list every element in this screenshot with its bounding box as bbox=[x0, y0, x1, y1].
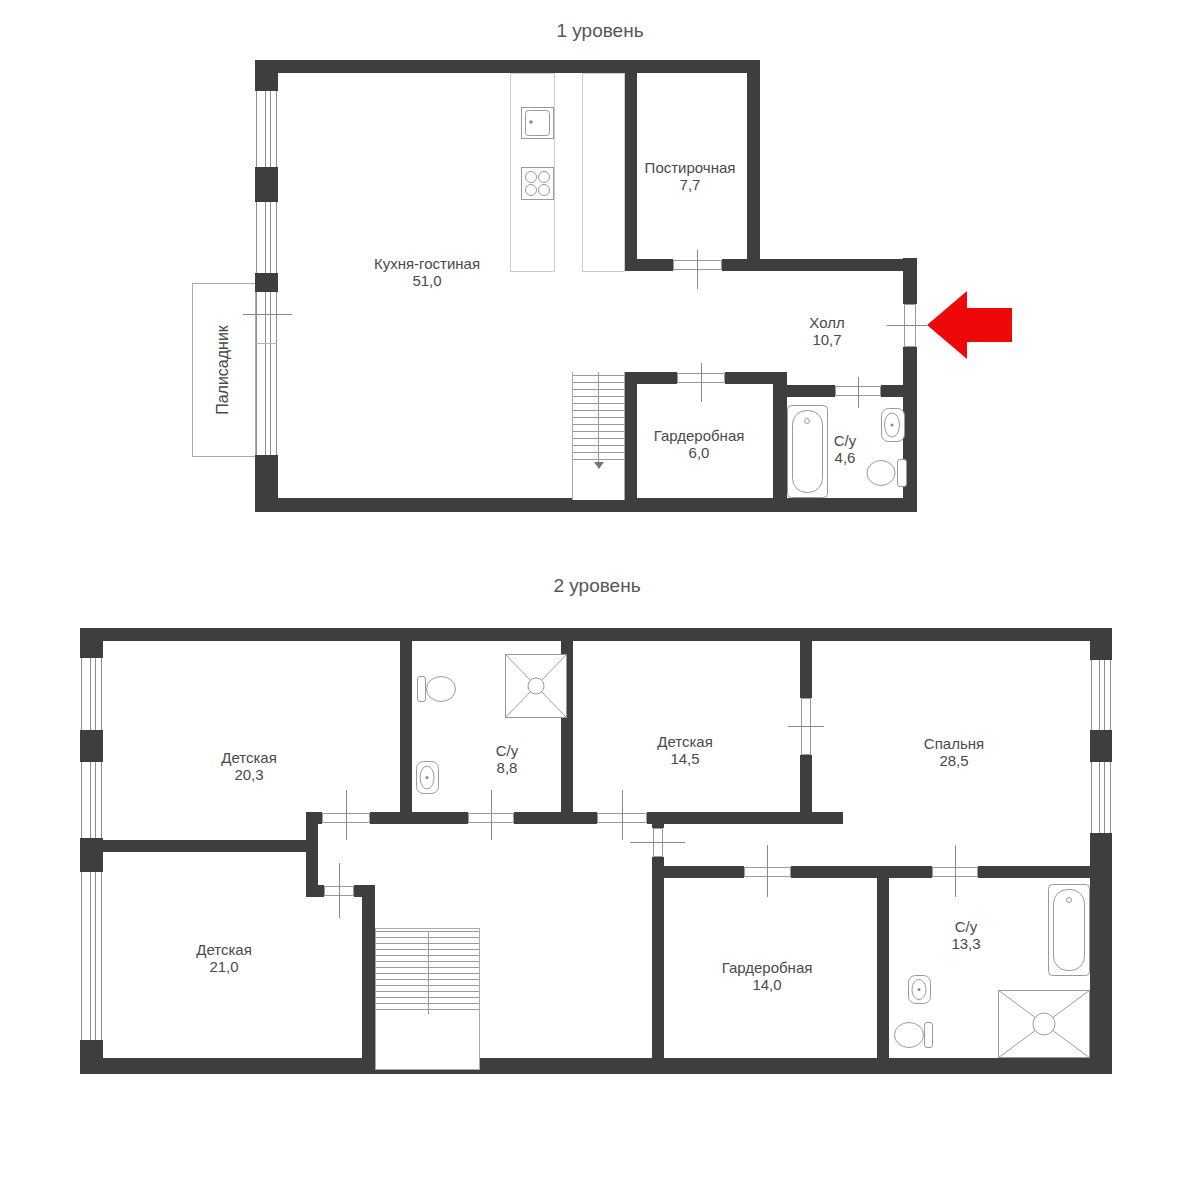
room-area: 6,0 bbox=[654, 445, 745, 462]
room-label-bathroom-1: С/у 4,6 bbox=[834, 433, 857, 467]
sink-icon bbox=[908, 975, 931, 1008]
wall bbox=[652, 878, 664, 1058]
room-label-bathroom-2: С/у 8,8 bbox=[496, 743, 519, 777]
door-tick bbox=[858, 377, 859, 408]
window-divider bbox=[256, 343, 277, 344]
bathtub-icon bbox=[787, 405, 828, 502]
sink-icon bbox=[416, 761, 439, 798]
stairs bbox=[375, 928, 480, 1070]
stair-centerline bbox=[428, 931, 429, 1014]
shower-icon bbox=[505, 654, 567, 722]
wall bbox=[514, 812, 597, 824]
wall bbox=[255, 167, 278, 202]
wall bbox=[881, 385, 903, 397]
window bbox=[81, 762, 102, 838]
room-area: 14,5 bbox=[657, 751, 713, 768]
wall bbox=[1090, 628, 1112, 660]
bathtub-icon bbox=[1048, 884, 1090, 980]
toilet-icon bbox=[893, 1020, 933, 1054]
stove-icon bbox=[521, 167, 554, 204]
room-area: 14,0 bbox=[722, 977, 813, 994]
door-tick bbox=[339, 863, 340, 918]
room-area: 20,3 bbox=[221, 767, 277, 784]
wall bbox=[652, 866, 744, 878]
toilet-icon bbox=[866, 457, 908, 493]
wall bbox=[625, 259, 673, 271]
room-label-bathroom-3: С/у 13,3 bbox=[951, 919, 980, 953]
wall bbox=[80, 1058, 1112, 1074]
room-label-hall: Холл 10,7 bbox=[809, 315, 844, 349]
room-name: Холл bbox=[809, 315, 844, 332]
room-label-wardrobe-1: Гардеробная 6,0 bbox=[654, 428, 745, 462]
window bbox=[1091, 660, 1111, 730]
window bbox=[256, 292, 277, 455]
room-area: 8,8 bbox=[496, 760, 519, 777]
wall bbox=[647, 812, 843, 824]
wall bbox=[785, 385, 835, 397]
window bbox=[256, 202, 277, 273]
wall bbox=[370, 812, 468, 824]
door-tick bbox=[887, 325, 927, 326]
wall bbox=[1090, 833, 1112, 1074]
wall bbox=[625, 372, 637, 498]
room-name: Кухня-гостиная bbox=[374, 256, 480, 273]
room-name: Детская bbox=[196, 942, 252, 959]
wall bbox=[255, 60, 278, 91]
door-tick bbox=[697, 250, 698, 289]
room-area: 4,6 bbox=[834, 450, 857, 467]
room-name: С/у bbox=[951, 919, 980, 936]
wall bbox=[791, 866, 932, 878]
wall bbox=[625, 60, 637, 271]
wall bbox=[1090, 730, 1112, 762]
room-label-kids-3: Детская 21,0 bbox=[196, 942, 252, 976]
door-tick bbox=[788, 726, 824, 727]
door-tick bbox=[346, 790, 347, 840]
room-name: Детская bbox=[221, 750, 277, 767]
wall bbox=[800, 755, 812, 820]
room-area: 13,3 bbox=[951, 936, 980, 953]
door-tick bbox=[955, 845, 956, 897]
wall bbox=[101, 840, 318, 852]
room-area: 10,7 bbox=[809, 332, 844, 349]
wall bbox=[255, 60, 760, 73]
room-name: Спальня bbox=[924, 736, 984, 753]
wall bbox=[306, 885, 324, 897]
room-label-kitchen-living: Кухня-гостиная 51,0 bbox=[374, 256, 480, 290]
wall bbox=[722, 259, 917, 271]
room-area: 21,0 bbox=[196, 959, 252, 976]
level-1-title: 1 уровень bbox=[556, 20, 643, 42]
room-label-kids-2: Детская 14,5 bbox=[657, 734, 713, 768]
stairs bbox=[572, 372, 625, 500]
room-name: С/у bbox=[834, 433, 857, 450]
wall bbox=[877, 878, 889, 1058]
wall bbox=[747, 60, 760, 271]
room-area: 51,0 bbox=[374, 273, 480, 290]
door-tick bbox=[630, 842, 685, 843]
toilet-icon bbox=[417, 674, 457, 708]
kitchen-sink-icon bbox=[521, 107, 554, 143]
wall bbox=[978, 866, 1090, 878]
room-name: С/у bbox=[496, 743, 519, 760]
room-label-kids-1: Детская 20,3 bbox=[221, 750, 277, 784]
room-label-wardrobe-2: Гардеробная 14,0 bbox=[722, 960, 813, 994]
kitchen-island bbox=[582, 73, 625, 272]
door-tick bbox=[491, 790, 492, 840]
stair-centerline bbox=[598, 372, 599, 464]
stair-down-arrow-icon bbox=[594, 462, 604, 469]
wall bbox=[652, 857, 664, 866]
wall bbox=[80, 730, 103, 762]
room-area: 28,5 bbox=[924, 753, 984, 770]
wall bbox=[80, 838, 103, 872]
room-name: Детская bbox=[657, 734, 713, 751]
room-area: 7,7 bbox=[645, 177, 736, 194]
wall bbox=[400, 641, 412, 820]
room-label-bedroom: Спальня 28,5 bbox=[924, 736, 984, 770]
window bbox=[1091, 762, 1111, 833]
palisade-label: Палисадник bbox=[214, 325, 232, 415]
window bbox=[256, 91, 277, 167]
floorplan-page: 1 уровень Палисадник bbox=[0, 0, 1200, 1197]
shower-icon bbox=[998, 990, 1090, 1062]
door-tick bbox=[701, 363, 702, 402]
room-name: Постирочная bbox=[645, 160, 736, 177]
window bbox=[81, 658, 102, 730]
room-name: Гардеробная bbox=[722, 960, 813, 977]
room-label-laundry: Постирочная 7,7 bbox=[645, 160, 736, 194]
entrance-arrow-icon bbox=[927, 291, 1012, 363]
wall bbox=[625, 372, 677, 384]
level-2-title: 2 уровень bbox=[553, 575, 640, 597]
wall bbox=[903, 258, 917, 304]
wall bbox=[800, 641, 812, 698]
wall bbox=[80, 628, 1112, 641]
door-tick bbox=[767, 845, 768, 897]
door-tick bbox=[622, 790, 623, 840]
window bbox=[81, 872, 102, 1040]
wall bbox=[362, 885, 375, 1058]
room-name: Гардеробная bbox=[654, 428, 745, 445]
window-tick bbox=[243, 314, 292, 315]
sink-icon bbox=[881, 408, 905, 446]
wall bbox=[255, 273, 278, 292]
entrance-arrow-shape bbox=[927, 291, 1012, 359]
wall bbox=[80, 628, 103, 658]
